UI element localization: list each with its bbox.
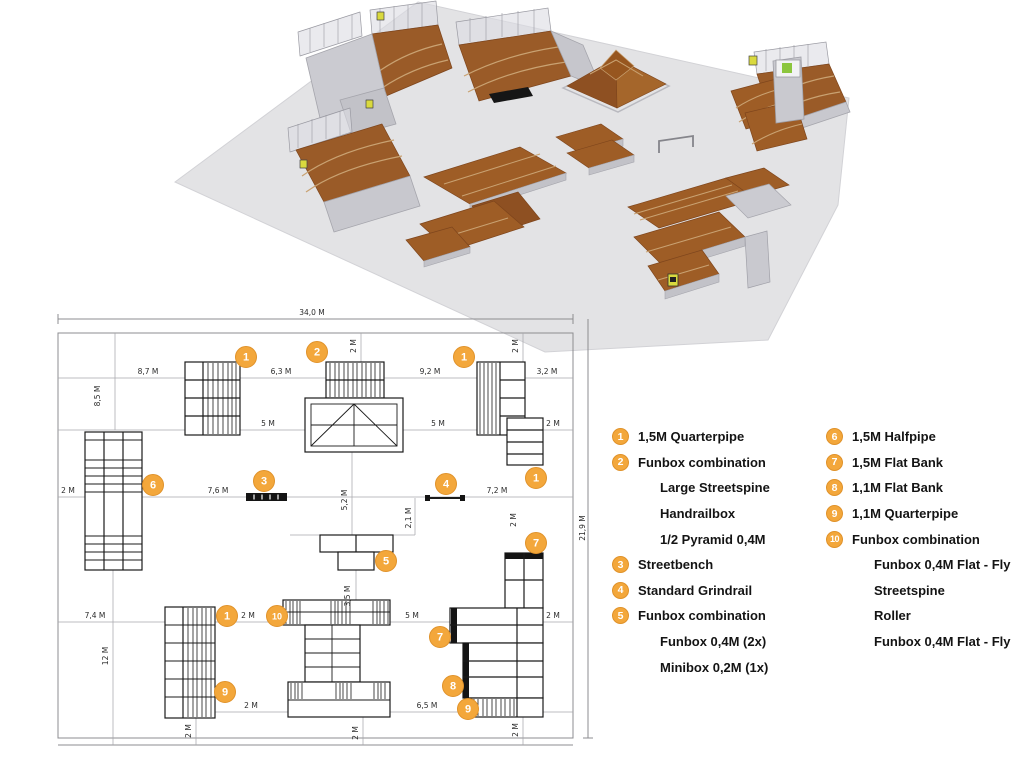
legend-number-badge: 5: [612, 607, 629, 624]
dimension-label: 3,2 M: [537, 367, 558, 376]
plan-marker-1: 1: [217, 606, 238, 627]
dimension-label: 2 M: [184, 724, 193, 738]
svg-text:1: 1: [533, 473, 539, 485]
dimension-label: 34,0 M: [299, 308, 325, 317]
svg-text:3: 3: [261, 476, 267, 488]
dimension-label: 7,6 M: [208, 486, 229, 495]
legend-label: 1,5M Quarterpipe: [638, 429, 744, 444]
legend-item: 11,5M Quarterpipe: [612, 424, 770, 450]
warning-sign-icon: [366, 100, 373, 108]
svg-text:1: 1: [461, 352, 467, 364]
legend-number-badge: 6: [826, 428, 843, 445]
legend-subitem: Handrailbox: [660, 501, 770, 527]
plan-marker-1: 1: [236, 347, 257, 368]
plan-marker-6: 6: [143, 475, 164, 496]
legend-subitem: Funbox 0,4M Flat - Fly: [874, 629, 1011, 655]
warning-sign-icon: [300, 160, 307, 168]
plan-funbox-combination-10: [283, 600, 390, 717]
plan-grindrail-4: [425, 495, 465, 501]
render-3d: [175, 1, 850, 352]
plan-marker-4: 4: [436, 474, 457, 495]
dimension-label: 12 M: [101, 647, 110, 665]
plan-flatbank-complex-right: [450, 553, 543, 717]
legend-subitem: Streetspine: [874, 578, 1011, 604]
plan-streetbench-3: [246, 493, 287, 501]
legend-label: Handrailbox: [660, 506, 735, 521]
dimension-label: 5 M: [431, 419, 445, 428]
legend-label: Standard Grindrail: [638, 583, 752, 598]
dimension-label: 5 M: [261, 419, 275, 428]
plan-marker-5: 5: [376, 551, 397, 572]
legend-number-badge: 7: [826, 454, 843, 471]
plan-marker-2: 2: [307, 342, 328, 363]
dimension-label: 21,9 M: [578, 515, 587, 541]
svg-text:8: 8: [450, 681, 456, 693]
legend-number-badge: 3: [612, 556, 629, 573]
legend-item: 5Funbox combination: [612, 603, 770, 629]
legend-label: Streetspine: [874, 583, 945, 598]
legend-item: 71,5M Flat Bank: [826, 450, 1011, 476]
svg-text:7: 7: [437, 632, 443, 644]
legend-item: 2Funbox combination: [612, 450, 770, 476]
legend-item: 81,1M Flat Bank: [826, 475, 1011, 501]
legend-label: Minibox 0,2M (1x): [660, 660, 768, 675]
legend-number-badge: 2: [612, 454, 629, 471]
svg-text:4: 4: [443, 479, 450, 491]
dimension-label: 2 M: [61, 486, 75, 495]
legend-item: 4Standard Grindrail: [612, 578, 770, 604]
plan-quarterpipe-bottomleft: [165, 607, 215, 718]
legend-label: 1,5M Flat Bank: [852, 455, 943, 470]
dimension-label: 2 M: [351, 726, 360, 740]
legend-subitem: Funbox 0,4M (2x): [660, 629, 770, 655]
dimension-label: 7,4 M: [85, 611, 106, 620]
dimension-label: 2 M: [546, 419, 560, 428]
dimension-label: 2 M: [241, 611, 255, 620]
plan-funbox-combination-2: [305, 362, 403, 452]
dimension-label: 6,5 M: [417, 701, 438, 710]
dimension-label: 2 M: [349, 339, 358, 353]
legend-label: Roller: [874, 608, 911, 623]
warning-sign-icon: [377, 12, 384, 20]
legend-label: 1,1M Quarterpipe: [852, 506, 958, 521]
legend-label: Funbox 0,4M (2x): [660, 634, 766, 649]
svg-text:2: 2: [314, 347, 320, 359]
legend-subitem: Roller: [874, 603, 1011, 629]
dimension-label: 2 M: [509, 513, 518, 527]
dimension-label: 7,2 M: [487, 486, 508, 495]
design-sheet: 34,0 M21,9 M8,7 M6,3 M9,2 M3,2 M2 M2 M8,…: [0, 0, 1024, 768]
legend-label: Funbox combination: [852, 532, 980, 547]
sign-glyph: [670, 277, 676, 282]
legend-label: 1,5M Halfpipe: [852, 429, 936, 444]
legend-number-badge: 9: [826, 505, 843, 522]
plan-quarterpipe-topright: [477, 362, 543, 465]
svg-text:9: 9: [465, 704, 471, 716]
legend-subitem: Funbox 0,4M Flat - Fly: [874, 552, 1011, 578]
dimension-label: 2 M: [546, 611, 560, 620]
legend-label: Streetbench: [638, 557, 713, 572]
legend-number-badge: 10: [826, 531, 843, 548]
plan-marker-1: 1: [526, 468, 547, 489]
plan-halfpipe-6: [85, 432, 142, 570]
dimension-label: 5 M: [405, 611, 419, 620]
legend-number-badge: 1: [612, 428, 629, 445]
legend-number-badge: 4: [612, 582, 629, 599]
legend-column-right: 61,5M Halfpipe71,5M Flat Bank81,1M Flat …: [826, 424, 1011, 654]
plan-marker-7: 7: [430, 627, 451, 648]
plan-structures: [85, 362, 543, 718]
legend-subitem: Minibox 0,2M (1x): [660, 654, 770, 680]
legend-label: 1/2 Pyramid 0,4M: [660, 532, 766, 547]
dimension-label: 5,2 M: [340, 490, 349, 511]
legend-label: Funbox combination: [638, 455, 766, 470]
dimension-label: 2,1 M: [404, 508, 413, 529]
dimension-label: 2 M: [511, 723, 520, 737]
legend-label: Funbox combination: [638, 608, 766, 623]
plan-quarterpipe-topleft: [185, 362, 240, 435]
plan-marker-3: 3: [254, 471, 275, 492]
svg-text:1: 1: [224, 611, 230, 623]
svg-text:5: 5: [383, 556, 389, 568]
plan-marker-7: 7: [526, 533, 547, 554]
legend-number-badge: 8: [826, 479, 843, 496]
dimension-label: 3,5 M: [343, 586, 352, 607]
plan-marker-9: 9: [458, 699, 479, 720]
legend-label: Funbox 0,4M Flat - Fly: [874, 634, 1011, 649]
svg-text:7: 7: [533, 538, 539, 550]
dimension-label: 2 M: [244, 701, 258, 710]
legend-subitem: Large Streetspine: [660, 475, 770, 501]
legend-item: 3Streetbench: [612, 552, 770, 578]
legend-item: 91,1M Quarterpipe: [826, 501, 1011, 527]
legend-subitem: 1/2 Pyramid 0,4M: [660, 526, 770, 552]
warning-sign-icon: [749, 56, 757, 65]
legend-label: Large Streetspine: [660, 480, 770, 495]
legend-item: 10Funbox combination: [826, 526, 1011, 552]
dimension-label: 8,5 M: [93, 386, 102, 407]
dimension-label: 8,7 M: [138, 367, 159, 376]
svg-text:1: 1: [243, 352, 249, 364]
dimension-label: 6,3 M: [271, 367, 292, 376]
plan-marker-9: 9: [215, 682, 236, 703]
svg-text:9: 9: [222, 687, 228, 699]
plan-marker-10: 10: [267, 606, 288, 627]
floor-plan: 34,0 M21,9 M8,7 M6,3 M9,2 M3,2 M2 M2 M8,…: [58, 308, 593, 745]
green-sign-icon: [782, 63, 792, 73]
plan-marker-1: 1: [454, 347, 475, 368]
legend-item: 61,5M Halfpipe: [826, 424, 1011, 450]
plan-marker-8: 8: [443, 676, 464, 697]
legend-label: 1,1M Flat Bank: [852, 480, 943, 495]
legend-label: Funbox 0,4M Flat - Fly: [874, 557, 1011, 572]
svg-text:6: 6: [150, 480, 156, 492]
dimension-label: 2 M: [511, 339, 520, 353]
legend-column-left: 11,5M Quarterpipe2Funbox combinationLarg…: [612, 424, 770, 680]
svg-text:10: 10: [272, 612, 282, 622]
dimension-label: 9,2 M: [420, 367, 441, 376]
